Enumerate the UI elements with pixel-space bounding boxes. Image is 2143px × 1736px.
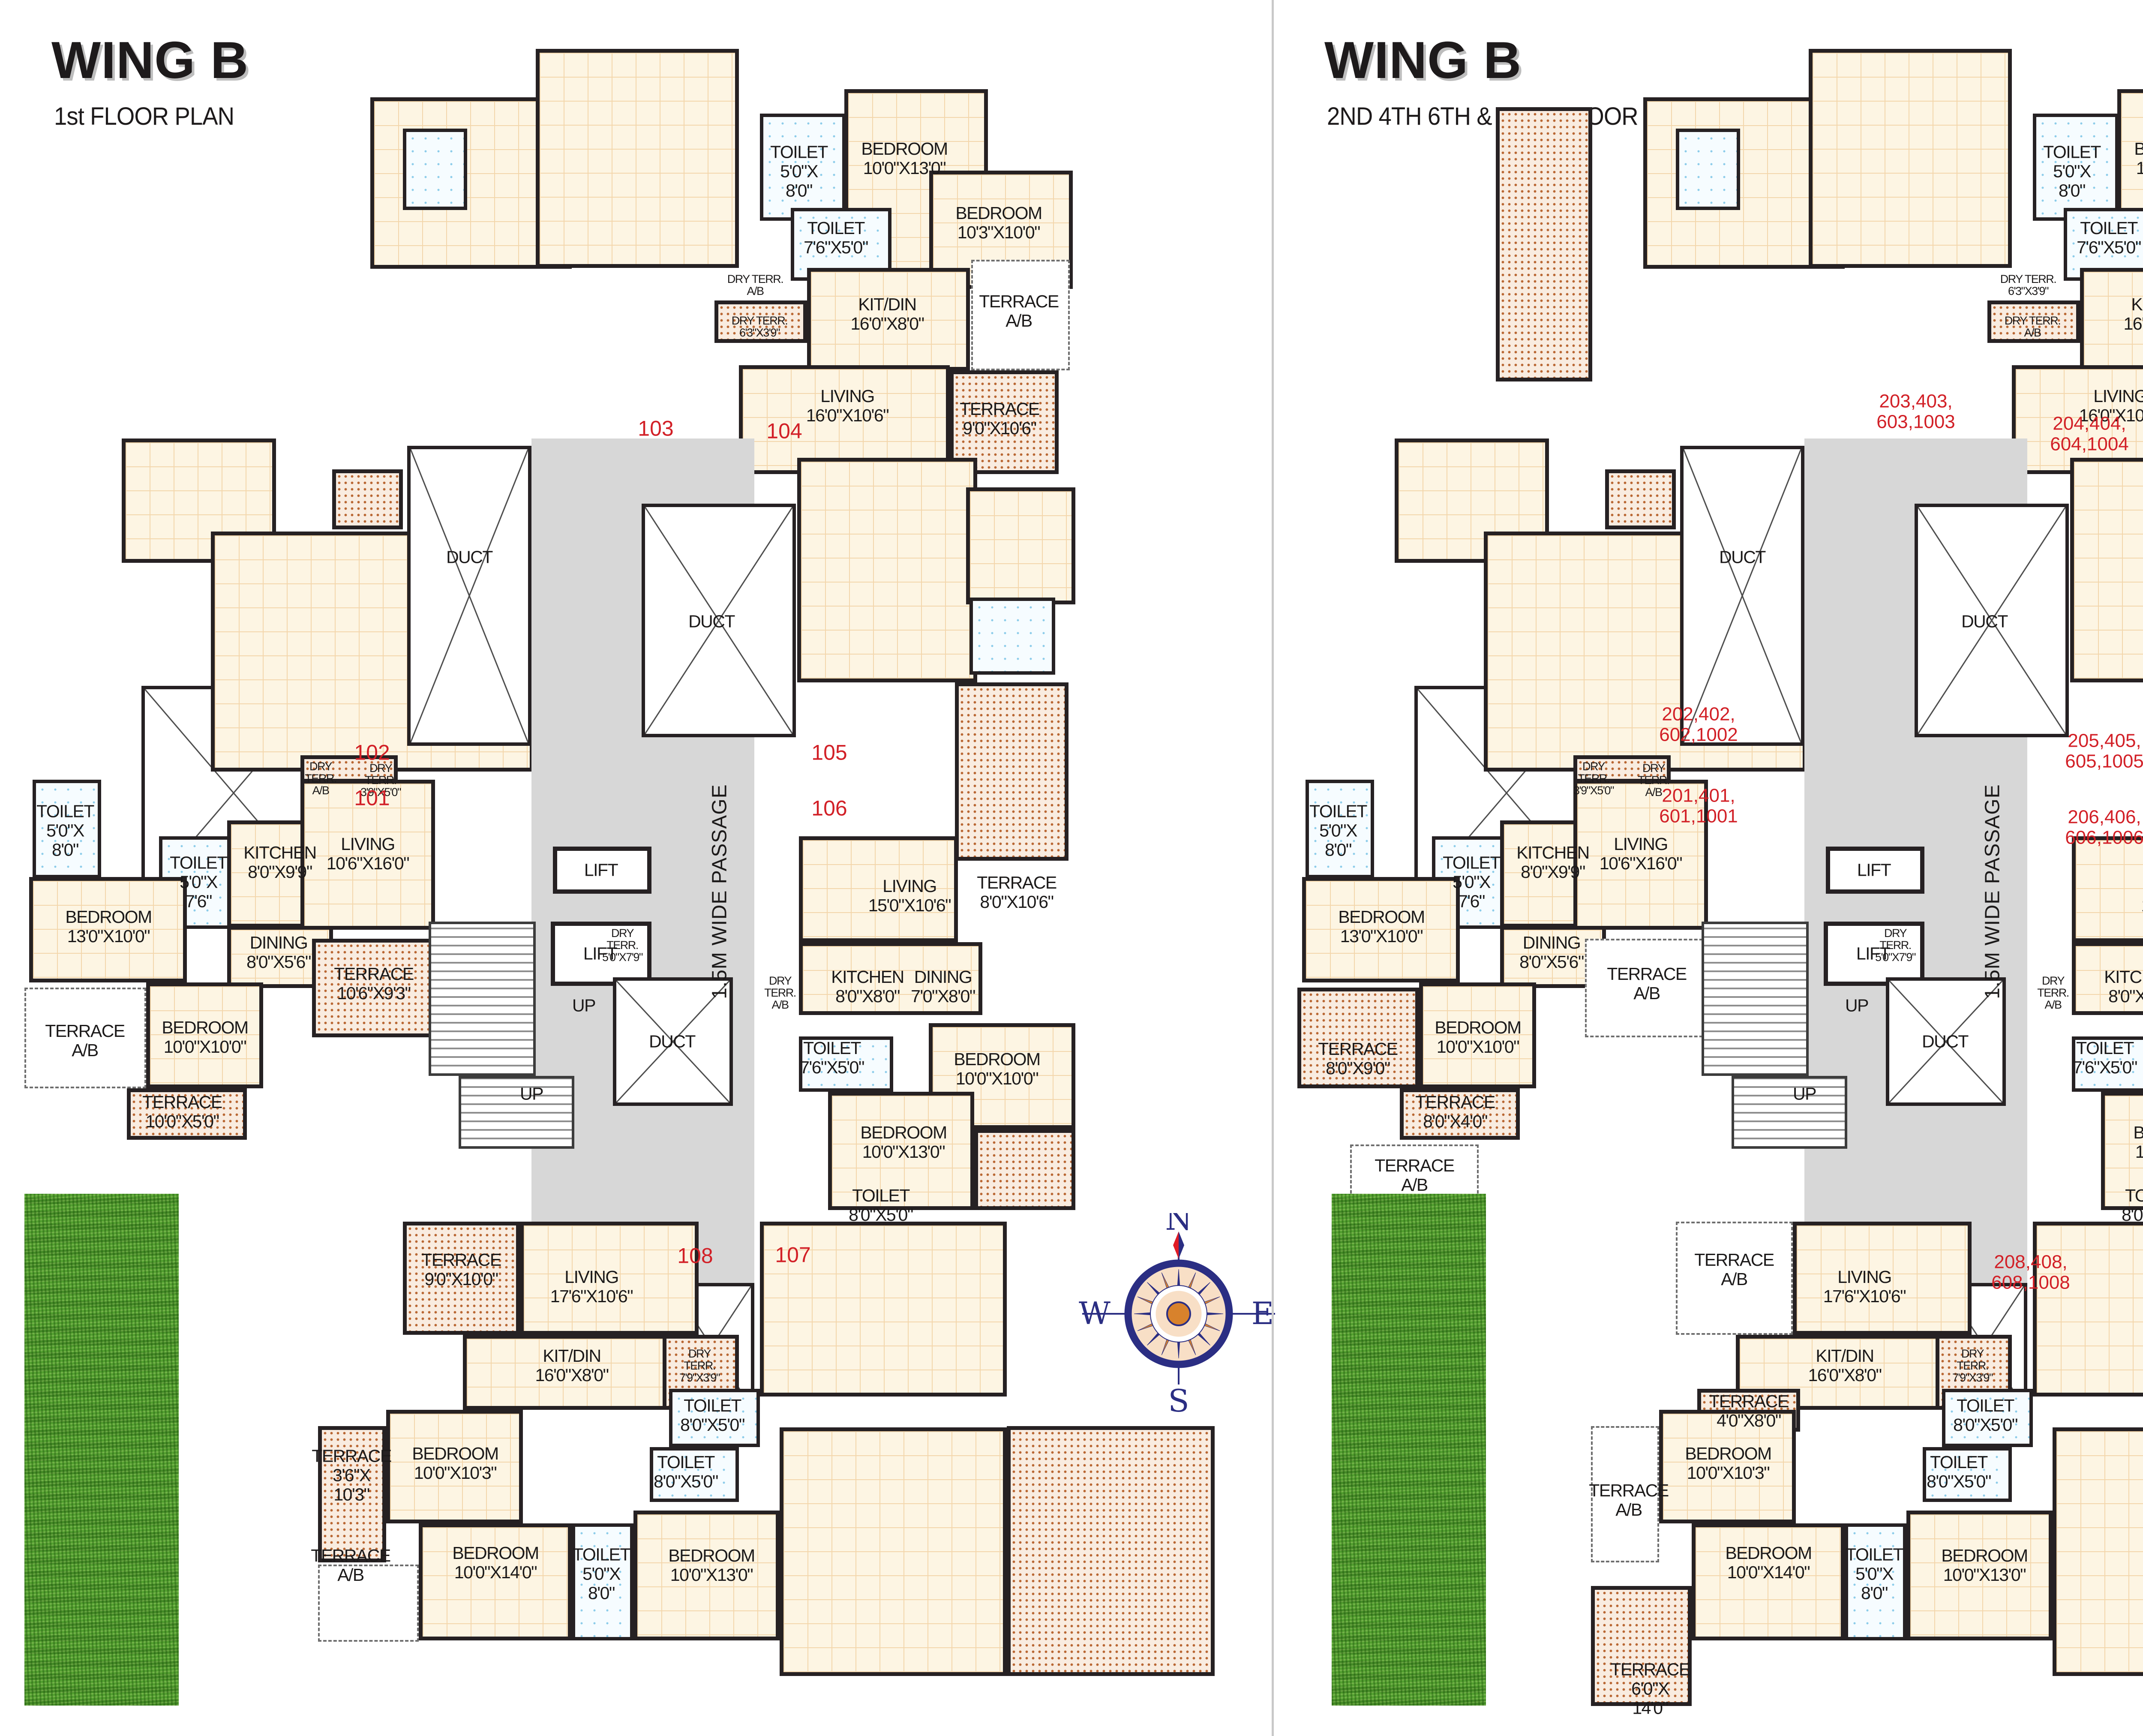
room-label: TOILET 5'0"X 8'0": [573, 1545, 630, 1603]
room-label: LIVING 10'6"X16'0": [327, 835, 409, 873]
room-label: DRY TERR. 7'9"X3'9": [679, 1348, 720, 1384]
room-label: UP: [1845, 996, 1868, 1015]
room-label: TOILET 7'6"X5'0": [2077, 219, 2141, 257]
plan-title: WING B: [51, 30, 249, 90]
room-label: TOILET 5'0"X 8'0": [2043, 142, 2101, 200]
zone-bedroom-105: [966, 487, 1075, 604]
zone-living-206: [2072, 836, 2143, 942]
passage-label: 1.5M WIDE PASSAGE: [709, 784, 732, 999]
room-label: BEDROOM 10'0"X13'0": [860, 1123, 946, 1162]
zone-duct-1: [407, 446, 531, 746]
room-label: BEDROOM 10'0"X13'0": [861, 139, 947, 178]
unit-number-label: 101: [354, 787, 390, 810]
room-label: TERRACE 8'0"X9'0": [1318, 1039, 1397, 1078]
unit-number-label: 206,406, 606,1006: [2065, 807, 2143, 847]
unit-number-label: 204,404, 604,1004: [2050, 413, 2129, 454]
room-label: UP: [520, 1084, 543, 1103]
room-label: BEDROOM 10'0"X13'0": [2133, 1123, 2143, 1162]
room-label: KIT/DIN 16'0"X8'0": [2123, 295, 2143, 333]
room-label: TOILET 8'0"X5'0": [1927, 1453, 1991, 1491]
zone-terrace-106: [974, 1129, 1075, 1210]
room-label: UP: [572, 996, 595, 1015]
room-label: TOILET 5'0"X 8'0": [1309, 802, 1367, 859]
zone-bedroom-207b: [2053, 1427, 2143, 1676]
plan-first-floor: WING B 1st FLOOR PLAN TOILET 5'0"X 8'0"B…: [0, 0, 1273, 1736]
zone-terrace-105: [955, 682, 1068, 861]
room-label: LIVING 10'6"X16'0": [1600, 835, 1682, 873]
room-label: LIVING 17'6"X10'6": [550, 1267, 633, 1306]
zone-bedroom-top-mid: [536, 49, 739, 268]
room-label: BEDROOM 10'0"X10'3": [1685, 1444, 1771, 1483]
room-label: TOILET 7'6"X5'0": [2073, 1039, 2137, 1077]
room-label: DRY TERR. 5'0"X7'9": [602, 927, 642, 963]
unit-number-label: 107: [775, 1243, 810, 1267]
room-label: DRY TERR. 5'0"X7'9": [1875, 927, 1915, 963]
zone-stairs-1: [429, 922, 536, 1076]
room-label: TOILET 8'0"X5'0": [849, 1186, 913, 1225]
room-label: TERRACE 6'0"X 14'0": [1610, 1660, 1690, 1718]
room-label: TERRACE 8'0"X4'0": [1415, 1093, 1495, 1131]
room-label: TOILET 5'0"X 7'6": [170, 853, 227, 911]
room-label: LIFT: [1857, 860, 1891, 880]
room-label: DINING 7'0"X8'0": [911, 967, 975, 1006]
room-label: LIVING 15'0"X10'6": [2141, 877, 2143, 915]
zone-dryterr-202: [1605, 469, 1676, 529]
grass-strip: [24, 1194, 179, 1706]
room-label: LIVING 16'0"X10'6": [806, 387, 888, 425]
unit-number-label: 106: [811, 797, 847, 820]
room-label: TOILET 5'0"X 8'0": [36, 802, 94, 859]
zone-dryterr-102: [332, 469, 403, 529]
unit-number-label: 202,402, 602,1002: [1659, 704, 1738, 745]
plan-upper-floors: WING B 2ND 4TH 6TH & 10TH FLOOR PLAN TOI…: [1273, 0, 2143, 1736]
room-label: TOILET 8'0"X5'0": [1953, 1396, 2017, 1435]
zone-living-205: [2070, 458, 2143, 682]
room-label: DUCT: [1922, 1032, 1968, 1051]
zone-bedroom-107b: [780, 1427, 1007, 1676]
zone-duct-1: [1680, 446, 1804, 746]
room-label: TOILET 7'6"X5'0": [804, 219, 868, 257]
room-label: TOILET 5'0"X 8'0": [770, 142, 828, 200]
room-label: LIVING 15'0"X10'6": [868, 877, 951, 915]
room-label: TERRACE 9'0"X10'6": [960, 399, 1039, 438]
room-label: BEDROOM 10'0"X10'0": [162, 1018, 248, 1057]
room-label: DINING 8'0"X5'6": [246, 933, 311, 972]
room-label: DUCT: [688, 612, 735, 631]
compass-west-label: W: [1079, 1295, 1111, 1331]
room-label: BEDROOM 10'0"X10'0": [1435, 1018, 1521, 1057]
room-label: TOILET 5'0"X 7'6": [1443, 853, 1500, 911]
room-label: KITCHEN 8'0"X9'9": [243, 843, 316, 882]
compass-rose-graphic: N E S W: [1078, 1213, 1279, 1415]
room-label: BEDROOM 10'0"X14'0": [452, 1544, 538, 1582]
room-label: LIVING 17'6"X10'6": [1823, 1267, 1906, 1306]
room-label: DUCT: [446, 547, 492, 567]
room-label: TERRACE 10'6"X9'3": [334, 964, 413, 1003]
room-label: DRY TERR. A/B: [305, 760, 336, 796]
room-label: TERRACE A/B: [1694, 1250, 1774, 1289]
room-label: DUCT: [649, 1032, 695, 1051]
room-label: DRY TERR. A/B: [727, 273, 783, 297]
panel-divider: [1272, 0, 1274, 1736]
passage-label: 1.5M WIDE PASSAGE: [1982, 784, 2005, 999]
room-label: BEDROOM 10'0"X10'3": [412, 1444, 498, 1483]
unit-number-label: 102: [354, 741, 390, 765]
room-label: KIT/DIN 16'0"X8'0": [1808, 1346, 1881, 1385]
room-label: DUCT: [1719, 547, 1765, 567]
room-label: TOILET 8'0"X5'0": [654, 1453, 718, 1491]
room-label: DRY TERR. 6'3"X3'9": [732, 315, 788, 339]
zone-living-105: [797, 458, 977, 682]
room-label: DRY TERR. A/B: [2037, 975, 2069, 1011]
room-label: TOILET 7'6"X5'0": [800, 1039, 864, 1077]
room-label: TERRACE A/B: [1375, 1156, 1454, 1195]
room-label: TOILET 5'0"X 8'0": [1846, 1545, 1903, 1603]
room-label: BEDROOM 10'0"X13'0": [2134, 139, 2143, 178]
unit-number-label: 205,405, 605,1005: [2065, 730, 2143, 771]
room-label: TERRACE A/B: [1607, 964, 1686, 1003]
room-label: DRY TERR. 6'3"X3'9": [2000, 273, 2056, 297]
room-label: TERRACE A/B: [979, 292, 1058, 330]
compass-north-label: N: [1165, 1213, 1192, 1237]
room-label: DRY TERR. 3'9"X5'0": [1573, 760, 1614, 796]
room-label: UP: [1793, 1084, 1816, 1103]
room-label: TERRACE 3'6"X 10'3": [312, 1446, 391, 1504]
room-label: KITCHEN 8'0"X9'9": [1516, 843, 1589, 882]
room-label: BEDROOM 13'0"X10'0": [1338, 907, 1424, 946]
zone-stairs-1: [1702, 922, 1809, 1076]
room-label: TERRACE 4'0"X8'0": [1709, 1392, 1788, 1430]
room-label: DRY TERR. 7'9"X3'9": [1952, 1348, 1993, 1384]
compass-rose: N E S W: [1078, 1213, 1279, 1417]
zone-stairs-2: [459, 1076, 574, 1149]
room-label: KITCHEN 8'0"X8'0": [2104, 967, 2143, 1006]
floor-plan-sheet: WING B 1st FLOOR PLAN TOILET 5'0"X 8'0"B…: [0, 0, 2143, 1736]
room-label: BEDROOM 10'0"X10'0": [954, 1050, 1040, 1088]
grass-strip: [1332, 1194, 1486, 1706]
zone-toilet-top-left: [1676, 129, 1740, 210]
room-label: KIT/DIN 16'0"X8'0": [535, 1346, 608, 1385]
unit-number-label: 208,408, 608,1008: [1991, 1252, 2070, 1292]
room-label: TERRACE 10'0"X5'0": [142, 1093, 222, 1131]
room-label: BEDROOM 10'0"X14'0": [1725, 1544, 1811, 1582]
room-label: DUCT: [1961, 612, 2008, 631]
room-label: DINING 8'0"X5'6": [1519, 933, 1584, 972]
room-label: KITCHEN 8'0"X8'0": [831, 967, 903, 1006]
room-label: KIT/DIN 16'0"X8'0": [850, 295, 924, 333]
unit-number-label: 201,401, 601,1001: [1659, 785, 1738, 826]
compass-south-label: S: [1168, 1383, 1189, 1415]
zone-terrace-202: [1496, 107, 1592, 381]
zone-terrace-107: [1007, 1426, 1215, 1676]
room-label: DRY TERR. A/B: [2005, 315, 2061, 339]
room-label: LIFT: [584, 860, 618, 880]
room-label: TERRACE 8'0"X10'6": [977, 873, 1056, 912]
room-label: BEDROOM 10'0"X13'0": [1941, 1546, 2027, 1585]
room-label: TERRACE A/B: [45, 1021, 124, 1060]
unit-number-label: 108: [677, 1244, 713, 1268]
plan-subtitle: 1st FLOOR PLAN: [54, 102, 234, 131]
room-label: TERRACE 9'0"X10'0": [421, 1250, 501, 1289]
zone-toilet-top-left: [403, 129, 467, 210]
room-label: BEDROOM 13'0"X10'0": [65, 907, 151, 946]
zone-bedroom-top-mid: [1809, 49, 2012, 268]
room-label: TOILET 8'0"X5'0": [680, 1396, 744, 1435]
room-label: TERRACE A/B: [1589, 1481, 1668, 1520]
room-label: BEDROOM 10'0"X13'0": [668, 1546, 754, 1585]
plan-title: WING B: [1324, 30, 1522, 90]
zone-stairs-2: [1732, 1076, 1847, 1149]
unit-number-label: 104: [766, 420, 802, 443]
unit-number-label: 103: [638, 417, 673, 441]
room-label: TERRACE A/B: [311, 1546, 390, 1585]
room-label: BEDROOM 10'3"X10'0": [955, 204, 1041, 242]
unit-number-label: 203,403, 603,1003: [1876, 391, 1955, 432]
compass-east-label: E: [1252, 1295, 1274, 1331]
zone-living-207: [2033, 1222, 2143, 1397]
room-label: DRY TERR. A/B: [764, 975, 796, 1011]
zone-toilet-105: [969, 598, 1055, 675]
room-label: TOILET 8'0"X5'0": [2122, 1186, 2143, 1225]
unit-number-label: 105: [811, 741, 847, 765]
